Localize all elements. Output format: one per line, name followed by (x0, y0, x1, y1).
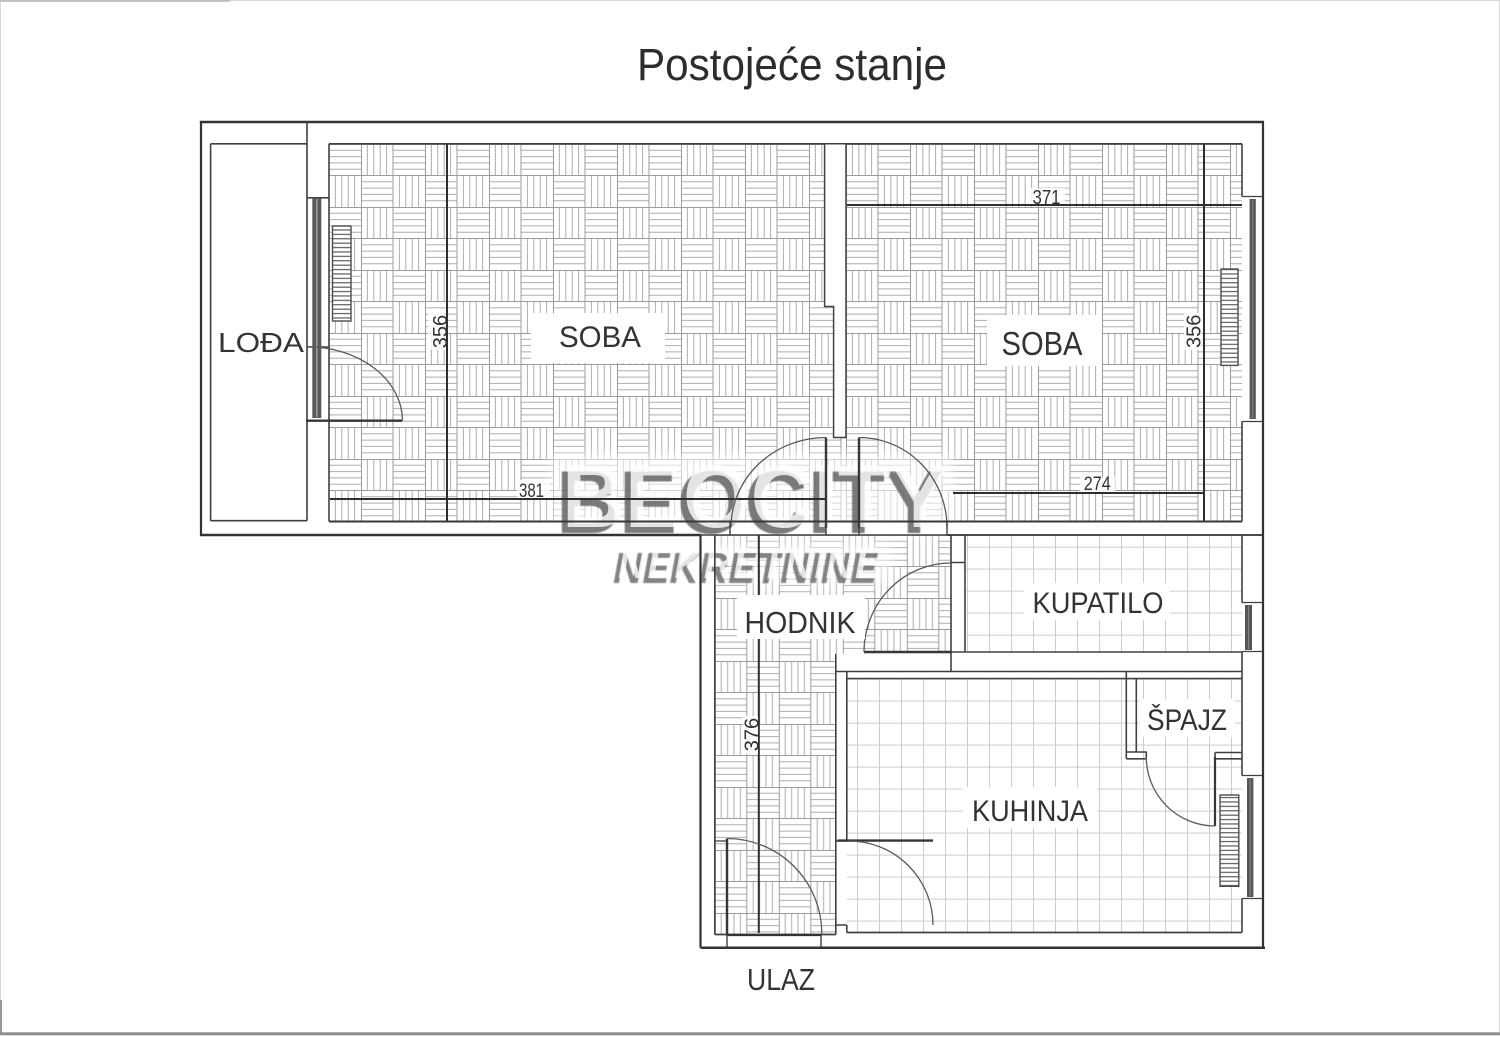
svg-text:356: 356 (430, 315, 452, 348)
svg-text:Postojeće stanje: Postojeće stanje (637, 39, 947, 90)
svg-text:381: 381 (519, 481, 544, 502)
svg-text:HODNIK: HODNIK (745, 605, 856, 640)
svg-text:376: 376 (742, 718, 764, 751)
svg-text:ULAZ: ULAZ (747, 962, 815, 997)
svg-text:KUHINJA: KUHINJA (972, 795, 1088, 828)
svg-text:SOBA: SOBA (559, 321, 641, 354)
svg-text:LOĐA: LOĐA (218, 327, 304, 358)
svg-text:356: 356 (1184, 315, 1206, 348)
svg-text:NEKRETNINE: NEKRETNINE (618, 539, 884, 588)
svg-text:274: 274 (1084, 474, 1111, 495)
svg-text:371: 371 (1033, 187, 1061, 209)
svg-text:SOBA: SOBA (1002, 325, 1083, 362)
svg-text:BEOCITY: BEOCITY (562, 446, 949, 546)
svg-text:KUPATILO: KUPATILO (1033, 587, 1164, 620)
svg-text:ŠPAJZ: ŠPAJZ (1147, 703, 1227, 737)
